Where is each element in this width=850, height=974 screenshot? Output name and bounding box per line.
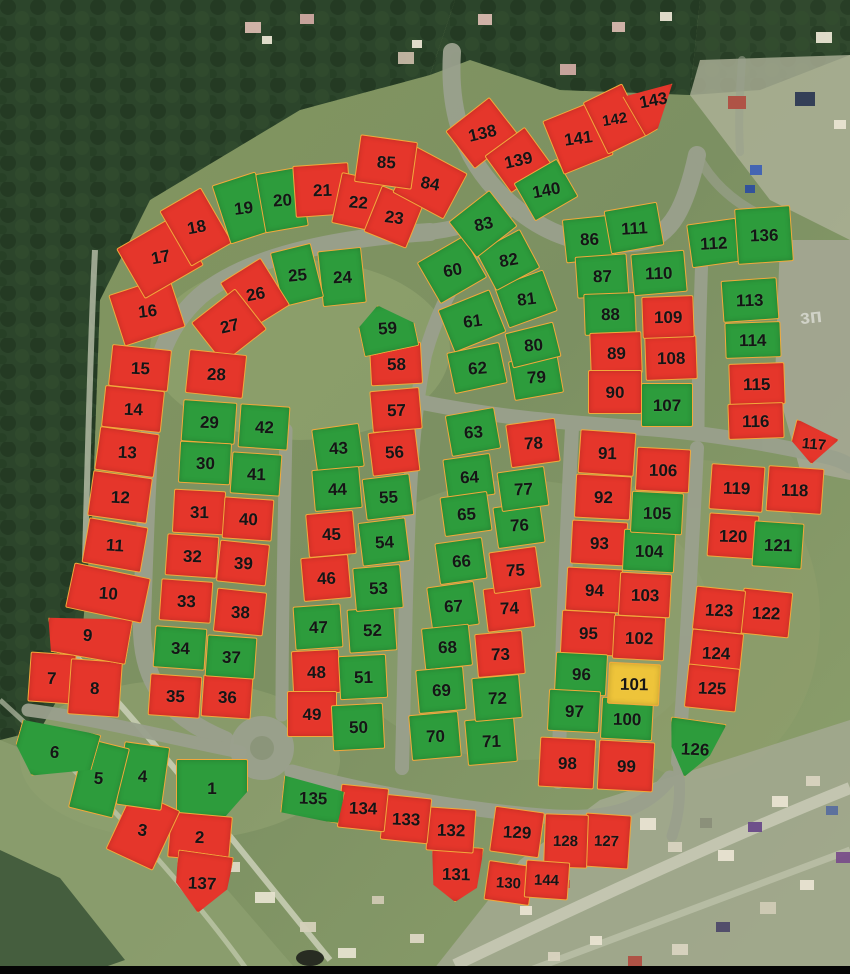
plot-number: 109 [654,308,683,325]
plot-number: 84 [419,173,441,193]
plot-number: 60 [441,260,463,280]
plot-93[interactable]: 93 [570,520,628,567]
plot-number: 129 [502,823,531,841]
plot-number: 18 [185,217,207,237]
plot-101[interactable]: 101 [607,662,661,707]
plot-51[interactable]: 51 [338,654,388,700]
plot-number: 10 [98,584,118,602]
plot-36[interactable]: 36 [201,674,254,719]
plot-number: 16 [137,302,158,321]
plot-number: 99 [616,757,635,774]
plot-111[interactable]: 111 [604,202,665,255]
plot-number: 86 [579,230,599,248]
plot-number: 89 [606,344,625,361]
plot-number: 115 [743,375,771,392]
plot-116[interactable]: 116 [727,402,784,440]
plot-42[interactable]: 42 [238,403,291,450]
plots-layer: 1234567891011121314151617181920212223242… [0,0,850,974]
plot-88[interactable]: 88 [583,292,636,336]
plot-number: 24 [332,268,352,286]
plot-115[interactable]: 115 [728,362,785,406]
plot-number: 116 [742,412,770,429]
plot-number: 8 [90,679,100,696]
plot-number: 139 [502,149,533,172]
plot-number: 28 [206,365,226,383]
plot-122[interactable]: 122 [739,588,794,639]
plot-121[interactable]: 121 [751,520,804,569]
plot-number: 107 [653,397,681,414]
plot-number: 66 [451,552,471,570]
plot-number: 9 [83,626,93,644]
plot-number: 27 [218,316,240,337]
plot-28[interactable]: 28 [185,349,247,399]
plot-number: 144 [534,872,559,888]
plot-8[interactable]: 8 [67,658,123,717]
plot-144[interactable]: 144 [524,860,571,901]
plot-number: 50 [348,718,367,735]
plot-95[interactable]: 95 [560,610,616,657]
plot-number: 59 [377,319,397,337]
plot-number: 94 [584,581,603,598]
plot-number: 126 [680,740,709,758]
plot-number: 69 [431,681,450,699]
plot-13[interactable]: 13 [94,426,160,478]
plot-number: 140 [531,179,562,201]
plot-48[interactable]: 48 [291,649,341,695]
plot-number: 2 [195,828,205,845]
plot-number: 133 [392,810,421,828]
plot-number: 104 [635,542,664,559]
plot-number: 40 [238,510,257,527]
plot-number: 4 [138,767,148,784]
plot-number: 36 [217,688,236,705]
plot-110[interactable]: 110 [630,250,687,297]
plot-104[interactable]: 104 [622,529,676,574]
plot-number: 7 [47,669,57,686]
plot-number: 80 [523,336,543,355]
plot-number: 1 [207,780,216,797]
plot-number: 141 [563,128,593,149]
plot-94[interactable]: 94 [565,567,623,614]
plot-number: 127 [594,833,619,849]
plot-number: 26 [244,284,266,304]
plot-40[interactable]: 40 [222,496,275,541]
plot-number: 96 [571,665,590,682]
plot-109[interactable]: 109 [641,295,694,339]
plot-52[interactable]: 52 [347,606,398,653]
plot-number: 56 [384,443,404,461]
plot-number: 71 [481,732,500,750]
plot-1[interactable]: 1 [176,759,248,817]
plot-129[interactable]: 129 [489,806,545,859]
plot-number: 61 [461,311,482,330]
plot-97[interactable]: 97 [547,689,601,734]
plot-53[interactable]: 53 [352,564,404,612]
plot-number: 38 [230,603,250,621]
plot-number: 30 [195,454,214,471]
plot-45[interactable]: 45 [305,510,357,558]
plot-number: 78 [523,434,543,452]
plot-number: 105 [643,504,672,521]
plot-number: 114 [739,331,767,348]
plot-number: 19 [233,199,254,218]
plot-number: 95 [578,624,597,641]
plot-41[interactable]: 41 [230,451,283,496]
plot-number: 136 [750,226,779,244]
plot-number: 83 [472,214,494,235]
plot-33[interactable]: 33 [159,578,214,624]
plot-number: 64 [459,468,479,486]
plot-37[interactable]: 37 [205,634,258,679]
plot-126[interactable]: 126 [663,716,727,781]
plot-number: 132 [437,821,466,839]
plot-114[interactable]: 114 [724,321,781,359]
plot-number: 87 [592,267,611,284]
plot-number: 29 [199,413,218,430]
plot-number: 119 [723,479,751,497]
plot-number: 137 [187,874,216,892]
plot-131[interactable]: 131 [428,844,484,903]
plot-106[interactable]: 106 [635,447,691,494]
plot-number: 33 [176,592,195,609]
plot-number: 102 [625,629,654,646]
plot-number: 143 [638,89,669,111]
plot-78[interactable]: 78 [505,418,561,469]
plot-136[interactable]: 136 [734,205,794,265]
plot-24[interactable]: 24 [317,247,367,307]
plot-123[interactable]: 123 [692,586,746,635]
plot-number: 131 [442,865,471,883]
plot-134[interactable]: 134 [337,784,389,833]
plot-117[interactable]: 117 [787,419,841,469]
plot-number: 106 [649,461,678,478]
plot-66[interactable]: 66 [434,537,487,585]
plot-number: 100 [613,710,642,727]
plot-number: 58 [386,355,405,372]
plot-137[interactable]: 137 [170,849,234,916]
plot-number: 67 [443,597,463,615]
plot-number: 88 [600,305,619,322]
plot-number: 52 [362,621,381,638]
plot-49[interactable]: 49 [287,691,337,737]
plot-number: 93 [589,534,608,551]
plot-number: 128 [553,833,578,848]
plot-number: 45 [321,525,340,543]
plot-number: 20 [272,191,292,209]
plot-number: 91 [597,444,616,461]
plot-number: 121 [764,536,793,554]
plot-number: 124 [702,644,731,662]
plot-125[interactable]: 125 [684,663,740,712]
plot-number: 92 [593,488,612,505]
plot-number: 35 [165,687,184,704]
plot-number: 118 [781,481,809,499]
plot-number: 101 [620,675,649,692]
plot-90[interactable]: 90 [588,370,642,414]
plot-15[interactable]: 15 [108,344,172,392]
plot-32[interactable]: 32 [165,533,220,579]
plot-number: 46 [316,569,335,587]
plot-98[interactable]: 98 [538,737,597,790]
plot-113[interactable]: 113 [721,277,780,323]
plot-number: 15 [130,359,150,377]
plot-number: 21 [312,181,331,198]
plot-99[interactable]: 99 [597,740,656,793]
plot-35[interactable]: 35 [148,673,203,719]
plot-63[interactable]: 63 [445,407,502,457]
plot-number: 5 [94,769,105,787]
plot-number: 135 [299,789,328,807]
plot-44[interactable]: 44 [311,466,362,512]
plot-70[interactable]: 70 [408,711,462,761]
plot-65[interactable]: 65 [439,491,492,537]
plot-number: 39 [233,554,253,572]
plot-number: 138 [466,121,498,144]
plot-number: 62 [467,359,487,377]
plot-number: 63 [463,423,483,441]
plot-38[interactable]: 38 [213,588,267,637]
plot-127[interactable]: 127 [582,812,632,869]
plot-72[interactable]: 72 [471,674,523,722]
plot-30[interactable]: 30 [178,441,232,486]
plot-number: 11 [105,536,124,554]
plot-number: 42 [254,418,273,435]
plot-number: 76 [509,516,529,534]
plot-56[interactable]: 56 [367,427,420,477]
plot-number: 74 [499,599,519,617]
plot-number: 125 [698,679,727,697]
plot-112[interactable]: 112 [686,218,742,269]
plot-108[interactable]: 108 [644,335,698,381]
plot-number: 68 [437,638,457,656]
plot-number: 110 [645,264,673,282]
plot-91[interactable]: 91 [578,429,637,477]
plot-47[interactable]: 47 [293,603,344,650]
plot-73[interactable]: 73 [474,630,526,678]
plot-number: 37 [221,648,240,665]
plot-54[interactable]: 54 [357,517,410,567]
plot-number: 13 [117,443,137,461]
plot-number: 57 [386,401,405,419]
plot-number: 122 [752,604,781,622]
plot-number: 73 [490,645,509,663]
plot-number: 17 [149,247,171,267]
plot-68[interactable]: 68 [421,624,473,671]
plot-number: 79 [526,368,546,386]
plot-number: 120 [719,527,748,545]
plot-number: 70 [425,727,444,745]
plot-85[interactable]: 85 [354,134,418,190]
plot-34[interactable]: 34 [153,625,208,671]
plot-number: 130 [496,875,522,891]
plot-89[interactable]: 89 [589,331,642,375]
plot-number: 72 [487,689,506,707]
plot-number: 77 [513,480,533,498]
plot-number: 43 [328,439,348,457]
plot-67[interactable]: 67 [426,581,480,631]
plot-number: 48 [306,663,325,680]
plot-number: 142 [601,110,628,129]
plot-75[interactable]: 75 [488,546,541,594]
plot-77[interactable]: 77 [496,466,549,512]
plot-number: 108 [657,349,686,366]
plot-103[interactable]: 103 [618,572,672,619]
plot-number: 103 [631,586,660,603]
plot-number: 47 [308,618,327,635]
plot-107[interactable]: 107 [641,383,693,427]
plot-11[interactable]: 11 [81,517,148,573]
plot-number: 41 [246,465,265,482]
plot-69[interactable]: 69 [415,666,467,714]
plot-118[interactable]: 118 [765,465,824,515]
plot-105[interactable]: 105 [630,491,684,536]
plot-number: 112 [700,234,728,252]
plot-number: 25 [287,266,307,285]
plot-132[interactable]: 132 [426,806,477,853]
plot-135[interactable]: 135 [280,772,346,824]
plot-number: 85 [376,153,396,171]
plot-number: 117 [801,435,826,452]
plot-number: 34 [170,639,189,656]
plot-number: 134 [349,799,378,817]
plot-number: 22 [348,193,368,211]
plot-71[interactable]: 71 [464,716,518,766]
plot-number: 49 [303,706,322,723]
plot-number: 111 [620,219,647,238]
plot-number: 98 [557,754,576,771]
plot-number: 65 [456,505,476,523]
plot-50[interactable]: 50 [331,703,385,752]
plot-102[interactable]: 102 [612,615,666,662]
plot-92[interactable]: 92 [574,474,632,521]
plot-number: 55 [378,488,398,506]
plot-number: 14 [123,400,143,418]
plot-number: 6 [49,743,60,761]
plot-number: 113 [736,291,764,309]
plot-number: 32 [182,547,201,564]
plot-map: зп 1234567891011121314151617181920212223… [0,0,850,974]
plot-number: 75 [505,561,525,579]
plot-number: 12 [110,488,130,506]
plot-14[interactable]: 14 [101,385,165,433]
plot-39[interactable]: 39 [216,540,270,587]
plot-119[interactable]: 119 [708,463,765,513]
plot-number: 51 [353,668,372,685]
plot-12[interactable]: 12 [87,470,153,524]
plot-57[interactable]: 57 [369,387,422,433]
plot-number: 23 [383,207,404,226]
plot-29[interactable]: 29 [181,399,238,445]
plot-number: 123 [705,601,734,619]
plot-number: 90 [606,384,625,401]
plot-46[interactable]: 46 [300,554,352,602]
plot-number: 97 [564,702,583,719]
plot-number: 54 [374,533,394,551]
plot-number: 44 [327,480,346,498]
plot-number: 82 [497,250,519,270]
plot-55[interactable]: 55 [362,473,415,521]
plot-number: 81 [516,289,537,308]
plot-number: 53 [368,579,387,597]
plot-number: 31 [189,503,208,520]
plot-31[interactable]: 31 [172,489,226,536]
plot-number: 3 [137,821,149,839]
